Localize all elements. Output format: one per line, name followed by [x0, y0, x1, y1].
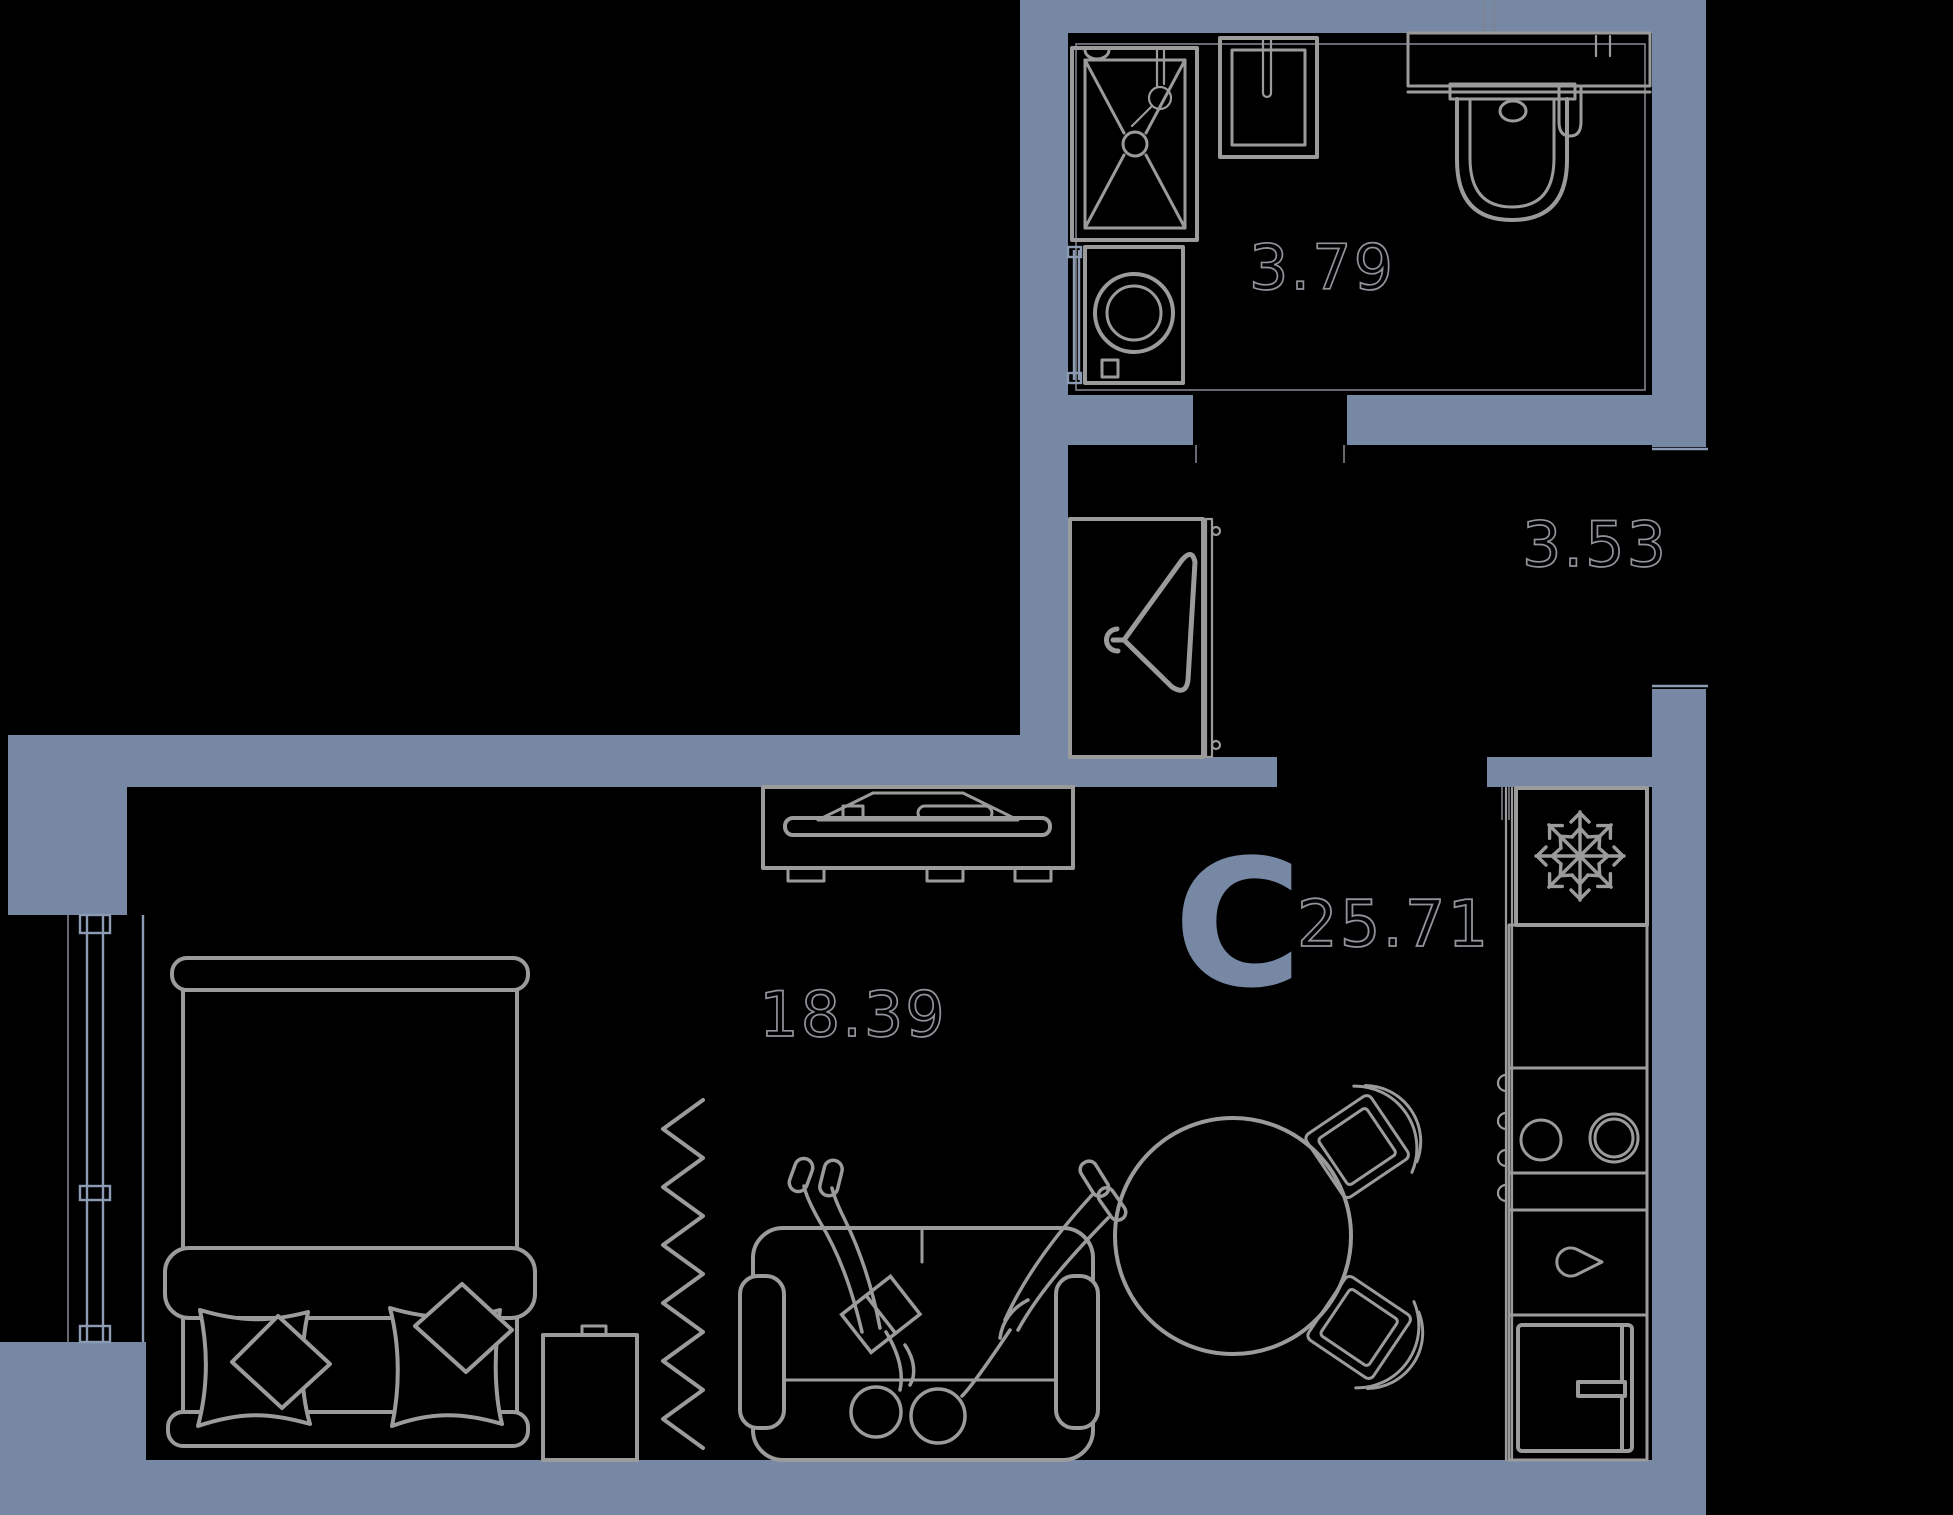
nightstand	[543, 1335, 637, 1460]
toilet-button-icon	[1500, 101, 1526, 121]
burner-icon	[1521, 1120, 1561, 1160]
bathroom-area-label: 3.79	[1249, 231, 1395, 304]
chair	[1298, 1263, 1442, 1407]
living-room: 18.39 C 25.71	[165, 787, 1647, 1460]
shower	[1072, 48, 1197, 240]
wall-livingroom-top	[8, 735, 1068, 787]
burner-icon	[1590, 1114, 1638, 1162]
sofa-armrest	[1056, 1276, 1098, 1428]
wall-bath-partition-left	[1068, 395, 1193, 445]
sink-faucet-icon	[1263, 38, 1271, 97]
basin-handle	[1578, 1382, 1625, 1396]
bed-top-bar	[172, 958, 528, 990]
foot	[818, 1158, 844, 1197]
small-sink	[1220, 38, 1317, 157]
wardrobe	[1070, 519, 1220, 757]
bathroom: 3.79	[1068, 2, 1650, 390]
bathroom-door-jambs	[1196, 445, 1344, 463]
kitchen-sink-unit	[1509, 1210, 1647, 1315]
counter-strip	[1509, 1173, 1647, 1210]
washing-machine	[1068, 247, 1183, 383]
toilet	[1450, 84, 1575, 220]
shower-drain-icon	[1123, 132, 1147, 156]
burner-icon	[1595, 1119, 1633, 1157]
window-frame-cap	[80, 1186, 110, 1200]
wall-right-lower	[1652, 689, 1706, 1515]
book-icon	[842, 1276, 920, 1352]
hallway-area-label: 3.53	[1522, 508, 1668, 581]
wall-bottom	[0, 1460, 1706, 1515]
cabinet-handles	[1498, 1075, 1506, 1201]
wall-bathroom-left	[1020, 0, 1068, 787]
wardrobe-hinge	[1212, 527, 1220, 535]
floor-plan-canvas: 3.79 3.53	[0, 0, 1953, 1515]
wardrobe-hinge	[1212, 741, 1220, 749]
dining-set	[1115, 1067, 1442, 1407]
bed	[165, 958, 535, 1446]
window	[68, 915, 143, 1342]
nightstand-handle	[582, 1326, 606, 1335]
chair	[1296, 1067, 1440, 1211]
wall-hall-bottom-right	[1487, 757, 1652, 787]
window-frame-cap	[80, 915, 110, 933]
snowflake-icon	[1536, 812, 1624, 900]
kitchen-cabinet	[1509, 925, 1647, 1068]
window-frame-cap	[80, 1326, 110, 1342]
washer-detergent-drawer	[1102, 360, 1118, 377]
floor-plan: 3.79 3.53	[0, 0, 1953, 1515]
person-left	[787, 1156, 920, 1437]
washer-door-icon	[1107, 286, 1161, 340]
hallway: 3.53	[1070, 508, 1668, 757]
wall-left-corner-block	[8, 735, 127, 915]
sofa-armrest	[740, 1276, 784, 1428]
hanger-icon	[1106, 554, 1195, 690]
head	[911, 1389, 965, 1443]
head	[851, 1387, 901, 1437]
faucet-icon	[1557, 1248, 1602, 1276]
wall-hall-bottom-left	[1068, 757, 1277, 787]
wall-right-upper	[1652, 0, 1706, 447]
wardrobe-door-line	[1206, 519, 1212, 757]
foot	[787, 1156, 816, 1194]
shower-notch	[1085, 50, 1109, 59]
living-area-label: 18.39	[759, 978, 947, 1051]
foot	[1077, 1158, 1112, 1199]
tv-console	[763, 787, 1073, 881]
unit-type-letter: C	[1173, 822, 1302, 1027]
wall-top	[1020, 0, 1706, 33]
wall-bath-partition-right	[1347, 395, 1652, 445]
kitchen	[1498, 788, 1647, 1460]
total-area-label: 25.71	[1297, 888, 1490, 962]
radiator	[663, 1100, 703, 1448]
